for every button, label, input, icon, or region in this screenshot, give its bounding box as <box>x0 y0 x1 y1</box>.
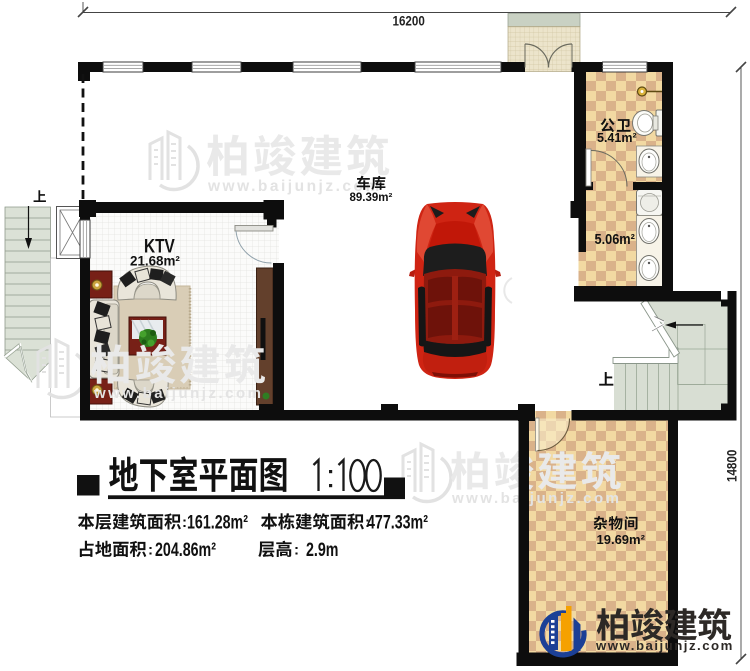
svg-text::: : <box>294 542 299 559</box>
svg-text:www.baijunjz.com: www.baijunjz.com <box>93 385 263 402</box>
svg-text:www.baijunjz.com: www.baijunjz.com <box>451 490 621 507</box>
svg-text:www.baijunjz.com: www.baijunjz.com <box>595 638 734 653</box>
svg-text:477.33m²: 477.33m² <box>367 512 428 533</box>
svg-text:5.41m²: 5.41m² <box>597 131 637 145</box>
svg-text::: : <box>182 514 187 531</box>
svg-text:2.9m: 2.9m <box>306 539 338 560</box>
svg-text:14800: 14800 <box>723 450 739 482</box>
svg-text:89.39m²: 89.39m² <box>350 192 393 204</box>
svg-text::: : <box>148 542 153 559</box>
svg-text:5.06m²: 5.06m² <box>595 231 636 247</box>
svg-text:161.28m²: 161.28m² <box>187 512 248 533</box>
svg-text:16200: 16200 <box>393 12 425 28</box>
svg-text:204.86m²: 204.86m² <box>155 539 216 560</box>
svg-text:19.69m²: 19.69m² <box>597 532 646 547</box>
svg-text:21.68m²: 21.68m² <box>130 254 180 269</box>
